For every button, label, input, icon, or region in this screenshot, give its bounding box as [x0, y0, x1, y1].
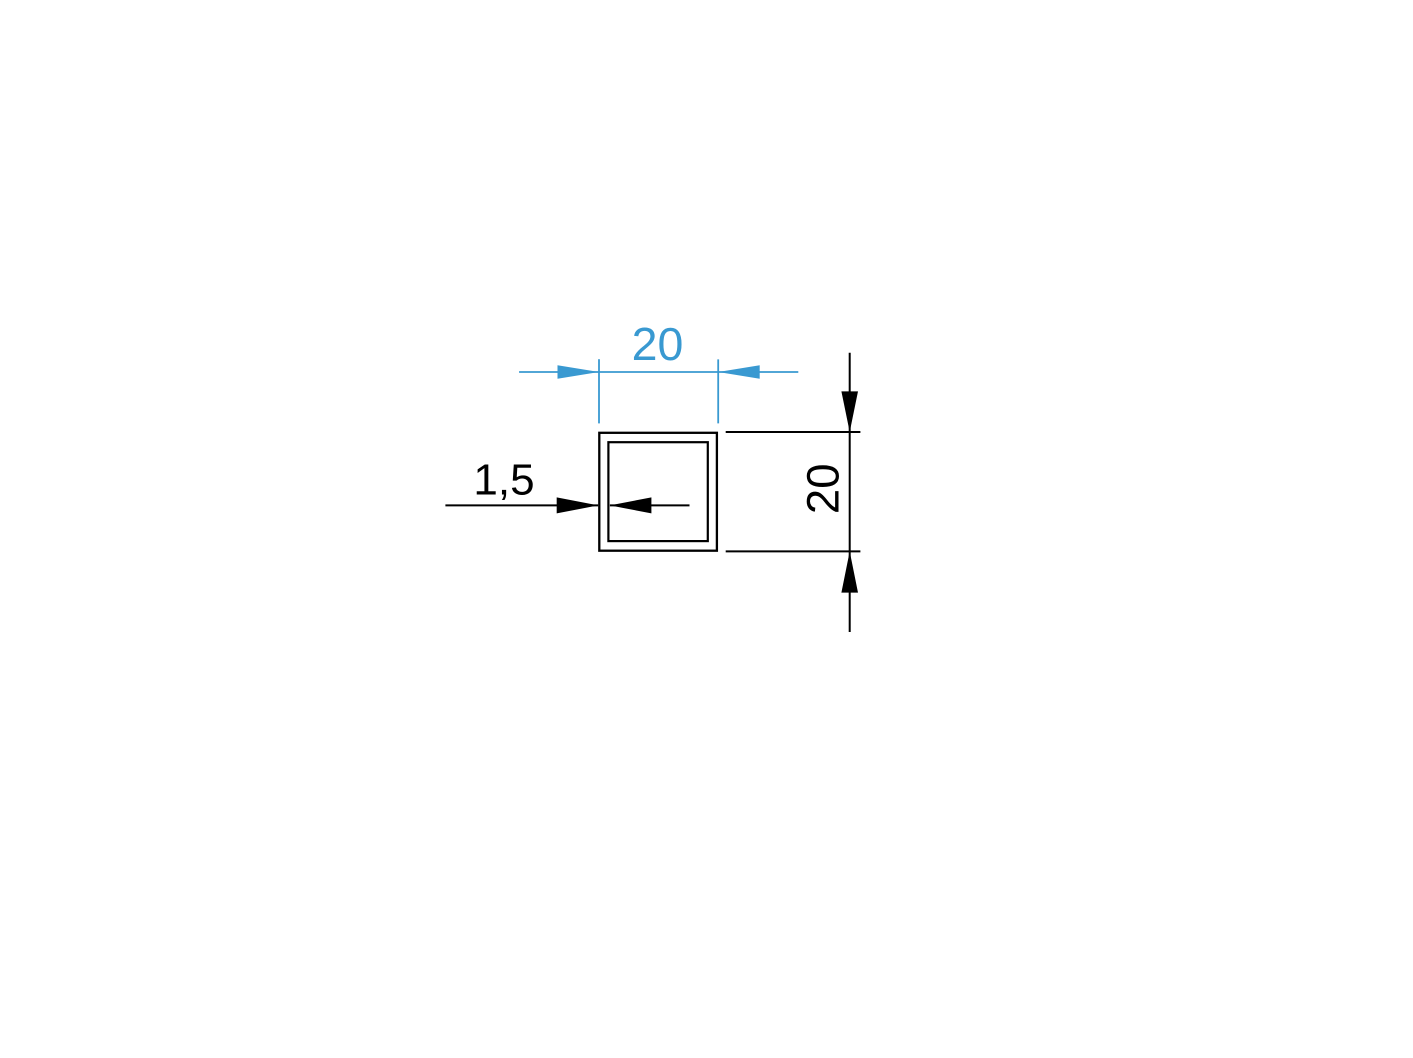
svg-text:20: 20 [632, 318, 684, 370]
svg-text:20: 20 [798, 463, 849, 514]
svg-text:1,5: 1,5 [473, 456, 534, 505]
